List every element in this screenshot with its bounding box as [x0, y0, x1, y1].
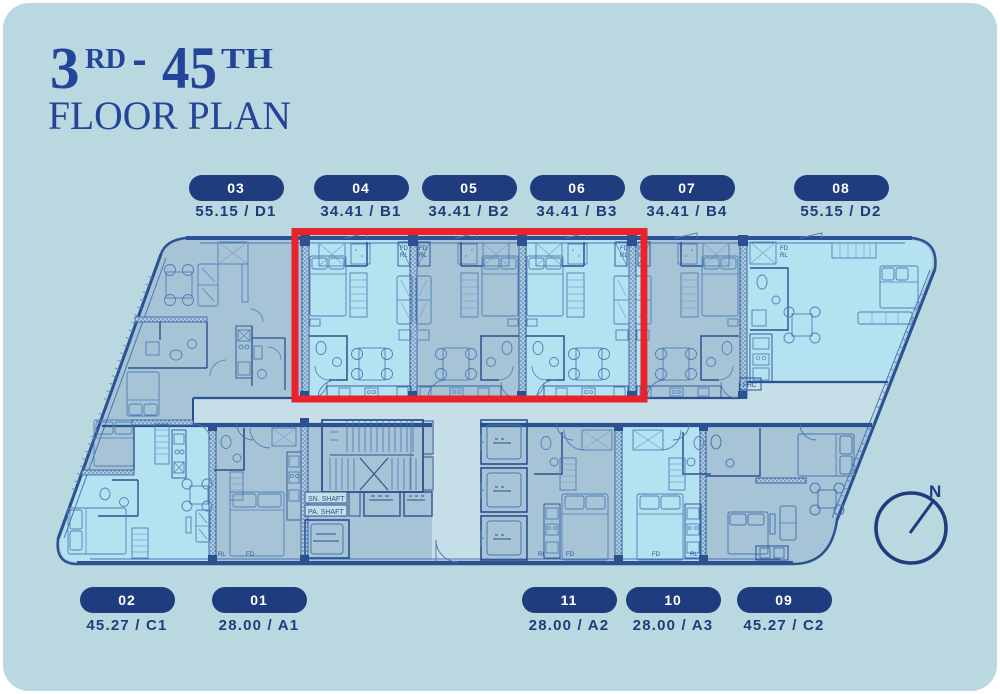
svg-text:34.41 / B1: 34.41 / B1: [320, 203, 401, 220]
svg-text:FD: FD: [246, 552, 255, 558]
svg-text:03: 03: [227, 180, 245, 196]
svg-text:45.27 / C2: 45.27 / C2: [743, 617, 824, 634]
svg-text:45: 45: [162, 35, 217, 101]
svg-text:PA. SHAFT: PA. SHAFT: [308, 509, 344, 516]
svg-text:28.00 / A3: 28.00 / A3: [633, 617, 714, 634]
svg-text:05: 05: [460, 180, 478, 196]
svg-text:55.15 / D2: 55.15 / D2: [800, 203, 881, 220]
svg-text:04: 04: [352, 180, 370, 196]
svg-text:RL: RL: [400, 253, 408, 259]
svg-text:FD: FD: [400, 246, 409, 252]
svg-text:TH: TH: [221, 43, 274, 75]
svg-text:3: 3: [50, 35, 80, 101]
svg-text:09: 09: [775, 592, 793, 608]
svg-text:FD: FD: [652, 552, 661, 558]
svg-text:FD: FD: [419, 246, 428, 252]
svg-text:RL: RL: [538, 552, 546, 558]
svg-text:FD: FD: [566, 552, 575, 558]
svg-text:RL: RL: [780, 253, 788, 259]
svg-text:FD: FD: [780, 246, 789, 252]
svg-text:11: 11: [561, 592, 578, 608]
svg-text:07: 07: [678, 180, 696, 196]
svg-text:34.41 / B3: 34.41 / B3: [536, 203, 617, 220]
svg-text:01: 01: [250, 592, 268, 608]
svg-text:45.27 / C1: 45.27 / C1: [86, 617, 167, 634]
svg-text:08: 08: [832, 180, 850, 196]
svg-text:RL: RL: [218, 552, 226, 558]
svg-text:10: 10: [664, 592, 682, 608]
svg-text:RL: RL: [419, 253, 427, 259]
svg-text:N: N: [929, 482, 941, 501]
svg-text:06: 06: [568, 180, 586, 196]
svg-text:28.00 / A2: 28.00 / A2: [529, 617, 610, 634]
svg-text:34.41 / B4: 34.41 / B4: [646, 203, 727, 220]
svg-text:RD: RD: [85, 44, 126, 75]
svg-text:RL: RL: [620, 253, 628, 259]
svg-text:34.41 / B2: 34.41 / B2: [428, 203, 509, 220]
svg-text:FD: FD: [620, 246, 629, 252]
svg-text:SN. SHAFT: SN. SHAFT: [308, 496, 345, 503]
svg-text:FHC: FHC: [743, 382, 757, 389]
svg-text:55.15 / D1: 55.15 / D1: [195, 203, 276, 220]
svg-text:RL: RL: [690, 552, 698, 558]
svg-text:28.00 / A1: 28.00 / A1: [219, 617, 300, 634]
svg-text:FLOOR PLAN: FLOOR PLAN: [48, 93, 291, 138]
svg-text:02: 02: [118, 592, 136, 608]
